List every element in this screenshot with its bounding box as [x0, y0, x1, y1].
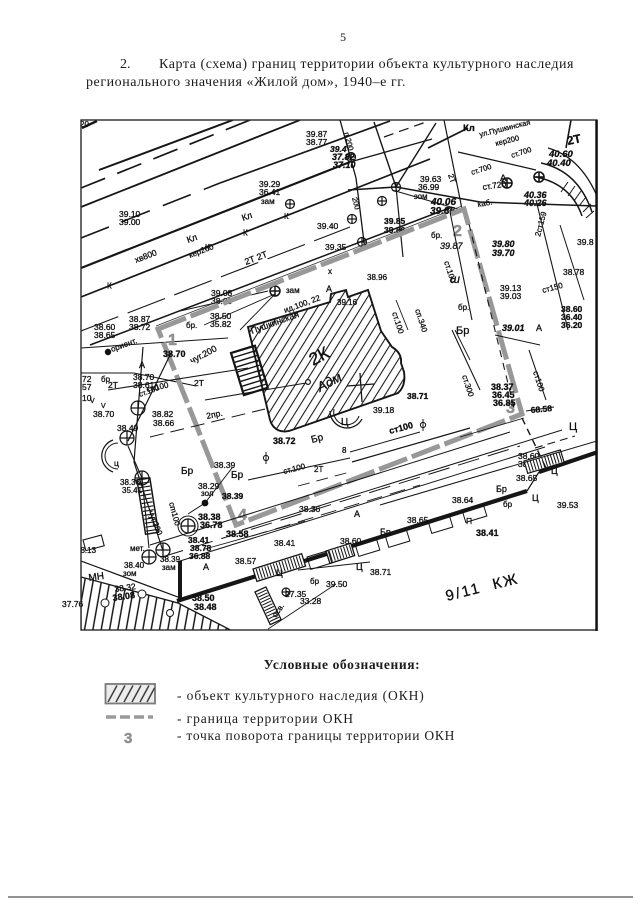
- svg-text:36.99: 36.99: [418, 182, 440, 192]
- svg-text:2пр.: 2пр.: [205, 408, 223, 421]
- svg-text:38.60: 38.60: [340, 536, 362, 546]
- svg-text:мет.: мет.: [130, 544, 145, 553]
- svg-text:38.65: 38.65: [516, 473, 538, 483]
- svg-text:К: К: [243, 228, 248, 237]
- svg-text:Бр: Бр: [181, 466, 194, 477]
- svg-text:36.41: 36.41: [259, 187, 281, 197]
- svg-text:36.20: 36.20: [561, 320, 583, 330]
- svg-text:39.40: 39.40: [317, 221, 339, 231]
- svg-text:39.18: 39.18: [373, 405, 395, 415]
- svg-text:38.65: 38.65: [94, 330, 116, 340]
- svg-text:2Т 2Т: 2Т 2Т: [243, 249, 269, 267]
- svg-text:2.: 2.: [120, 57, 131, 72]
- svg-text:V: V: [90, 398, 95, 405]
- svg-text:чуг.200: чуг.200: [188, 343, 218, 365]
- svg-text:бр.: бр.: [458, 303, 469, 312]
- svg-text:3: 3: [124, 730, 132, 747]
- svg-text:- точка поворота границы терри: - точка поворота границы территории ОКН: [177, 728, 455, 743]
- svg-text:ш: ш: [450, 272, 460, 286]
- svg-text:ст100: ст100: [531, 370, 546, 393]
- svg-text:А: А: [203, 562, 209, 572]
- svg-text:39.53: 39.53: [557, 500, 579, 510]
- svg-text:39.01: 39.01: [502, 323, 525, 333]
- svg-text:Бр: Бр: [496, 484, 507, 494]
- svg-text:38.41: 38.41: [274, 538, 296, 548]
- svg-text:зам: зам: [162, 563, 176, 572]
- svg-text:Бр: Бр: [310, 432, 325, 446]
- svg-text:38.57: 38.57: [235, 556, 257, 566]
- svg-text:Ц: Ц: [569, 421, 577, 433]
- svg-text:40.40: 40.40: [546, 158, 571, 169]
- svg-text:Бр: Бр: [380, 527, 391, 537]
- svg-text:ц: ц: [114, 458, 119, 468]
- svg-text:38.72: 38.72: [273, 436, 296, 446]
- svg-text:А: А: [536, 323, 542, 333]
- svg-text:бр.: бр.: [431, 231, 442, 240]
- svg-text:38.65: 38.65: [407, 515, 429, 525]
- svg-text:ст150: ст150: [541, 281, 564, 295]
- svg-text:200: 200: [350, 196, 362, 210]
- svg-text:2ст159: 2ст159: [533, 210, 548, 237]
- svg-text:А: А: [139, 360, 145, 370]
- svg-text:Ц: Ц: [551, 466, 558, 476]
- svg-text:37.10: 37.10: [333, 160, 356, 170]
- svg-text:зам: зам: [286, 286, 300, 295]
- svg-text:К: К: [107, 282, 112, 291]
- svg-text:39.50: 39.50: [326, 579, 348, 589]
- svg-text:ст.700: ст.700: [510, 145, 533, 160]
- svg-text:38.64: 38.64: [452, 495, 474, 505]
- svg-text:2Т: 2Т: [194, 378, 204, 388]
- svg-text:- объект культурного наследия: - объект культурного наследия (ОКН): [177, 688, 425, 703]
- svg-text:х: х: [328, 267, 332, 276]
- svg-text:Ц: Ц: [276, 568, 283, 578]
- svg-text:38.39: 38.39: [222, 491, 244, 501]
- svg-text:бр: бр: [503, 500, 513, 509]
- svg-text:кер200: кер200: [187, 242, 215, 260]
- svg-text:38.39: 38.39: [214, 460, 236, 470]
- svg-text:Бр: Бр: [231, 470, 244, 481]
- svg-text:зам: зам: [261, 197, 275, 206]
- svg-text:Кл: Кл: [463, 123, 475, 134]
- svg-text:П: П: [466, 516, 472, 526]
- svg-text:ст100: ст100: [388, 420, 414, 436]
- svg-text:Карта (схема) границ территори: Карта (схема) границ территории объекта …: [159, 57, 574, 72]
- svg-text:Ц: Ц: [532, 493, 539, 503]
- svg-text:А: А: [326, 284, 332, 294]
- svg-text:ст.300: ст.300: [460, 374, 476, 399]
- svg-text:зом: зом: [123, 569, 137, 578]
- svg-text:39.00: 39.00: [119, 217, 141, 227]
- svg-text:хв800: хв800: [133, 247, 158, 265]
- svg-text:ст.700: ст.700: [470, 162, 493, 177]
- svg-text:38.66: 38.66: [153, 418, 175, 428]
- svg-text:38.48: 38.48: [194, 602, 217, 612]
- svg-text:38.72: 38.72: [129, 322, 151, 332]
- svg-text:36.85: 36.85: [493, 398, 516, 408]
- svg-text:регионального значения «Жилой: регионального значения «Жилой дом», 1940…: [86, 75, 406, 90]
- svg-text:сm100: сm100: [167, 501, 182, 527]
- svg-text:39.8: 39.8: [577, 237, 594, 247]
- svg-text:кер200: кер200: [494, 133, 520, 148]
- svg-text:каб.: каб.: [477, 198, 493, 209]
- svg-text:38.70: 38.70: [163, 349, 186, 359]
- svg-text:А: А: [354, 509, 360, 519]
- svg-text:Кл: Кл: [185, 232, 198, 245]
- svg-text:38.96: 38.96: [367, 273, 388, 282]
- svg-text:2Т: 2Т: [446, 173, 458, 185]
- svg-text:38.71: 38.71: [370, 567, 392, 577]
- svg-text:5: 5: [340, 30, 346, 44]
- svg-text:сп.340: сп.340: [413, 308, 429, 334]
- svg-text:38.70: 38.70: [93, 409, 115, 419]
- svg-text:- граница территории ОКН: - граница территории ОКН: [177, 711, 354, 726]
- svg-text:МН: МН: [88, 571, 105, 584]
- svg-text:39.87: 39.87: [440, 241, 464, 251]
- svg-text:Ц: Ц: [341, 417, 349, 428]
- svg-text:2Т: 2Т: [314, 465, 323, 474]
- svg-text:9/11 КЖ: 9/11 КЖ: [444, 570, 521, 605]
- svg-text:бр: бр: [310, 577, 320, 586]
- svg-text:ст.720: ст.720: [482, 179, 507, 192]
- svg-text:Условные обозначения:: Условные обозначения:: [264, 657, 420, 672]
- svg-text:39.70: 39.70: [492, 248, 515, 258]
- svg-text:1: 1: [168, 332, 177, 349]
- svg-text:зом: зом: [414, 192, 428, 201]
- svg-text:Кл: Кл: [240, 210, 253, 223]
- svg-text:38.77: 38.77: [306, 137, 328, 147]
- svg-text:ст.100: ст.100: [390, 311, 406, 336]
- svg-text:ст.100: ст.100: [282, 462, 306, 476]
- svg-text:38.71: 38.71: [407, 391, 429, 401]
- svg-text:57: 57: [82, 382, 92, 392]
- svg-text:К: К: [284, 212, 289, 221]
- svg-text:39.03: 39.03: [500, 291, 522, 301]
- svg-text:36.88: 36.88: [189, 551, 211, 561]
- svg-text:8: 8: [342, 446, 347, 455]
- svg-text:38.41: 38.41: [476, 528, 499, 538]
- svg-text:39.35: 39.35: [325, 242, 347, 252]
- svg-text:бр.: бр.: [186, 321, 197, 330]
